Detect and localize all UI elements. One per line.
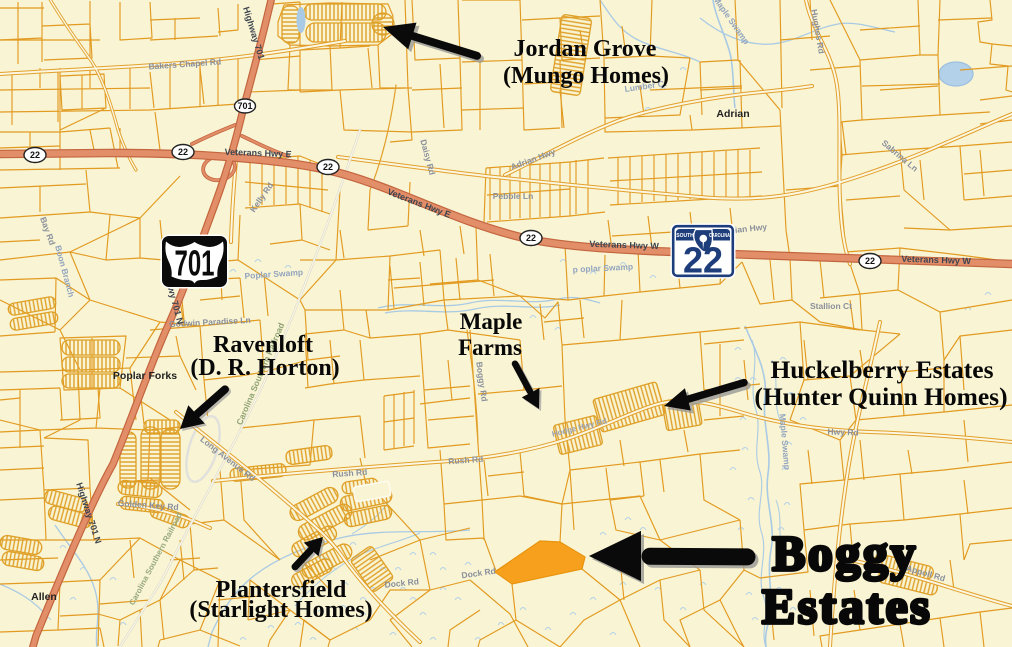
- svg-text:(Hunter Quinn Homes): (Hunter Quinn Homes): [754, 382, 1007, 411]
- svg-text:Pebble Ln: Pebble Ln: [493, 191, 534, 201]
- svg-text:(Starlight Homes): (Starlight Homes): [189, 597, 372, 623]
- svg-text:(D. R. Horton): (D. R. Horton): [190, 355, 339, 381]
- svg-text:22: 22: [683, 240, 723, 281]
- svg-text:Jordan Grove: Jordan Grove: [514, 36, 657, 62]
- svg-text:22: 22: [323, 162, 333, 172]
- svg-text:Estates: Estates: [762, 578, 932, 634]
- svg-text:701: 701: [237, 101, 252, 111]
- svg-text:Boggy: Boggy: [772, 525, 918, 581]
- svg-text:701: 701: [175, 243, 215, 284]
- svg-text:SOUTH: SOUTH: [676, 233, 694, 239]
- svg-text:CAROLINA: CAROLINA: [709, 233, 730, 239]
- svg-text:Hwy Rd: Hwy Rd: [827, 426, 859, 437]
- svg-text:Allen: Allen: [31, 591, 57, 603]
- svg-text:Maple: Maple: [460, 309, 523, 334]
- svg-text:22: 22: [178, 147, 188, 157]
- svg-text:Stallion Ct: Stallion Ct: [810, 301, 852, 311]
- svg-text:22: 22: [30, 150, 40, 160]
- svg-text:Poplar Forks: Poplar Forks: [113, 370, 177, 382]
- svg-text:22: 22: [526, 233, 536, 243]
- svg-text:22: 22: [865, 256, 875, 266]
- svg-text:Farms: Farms: [458, 335, 522, 360]
- svg-text:Huckelberry Estates: Huckelberry Estates: [770, 355, 993, 384]
- svg-text:(Mungo Homes): (Mungo Homes): [503, 63, 669, 89]
- svg-text:Adrian: Adrian: [716, 108, 749, 120]
